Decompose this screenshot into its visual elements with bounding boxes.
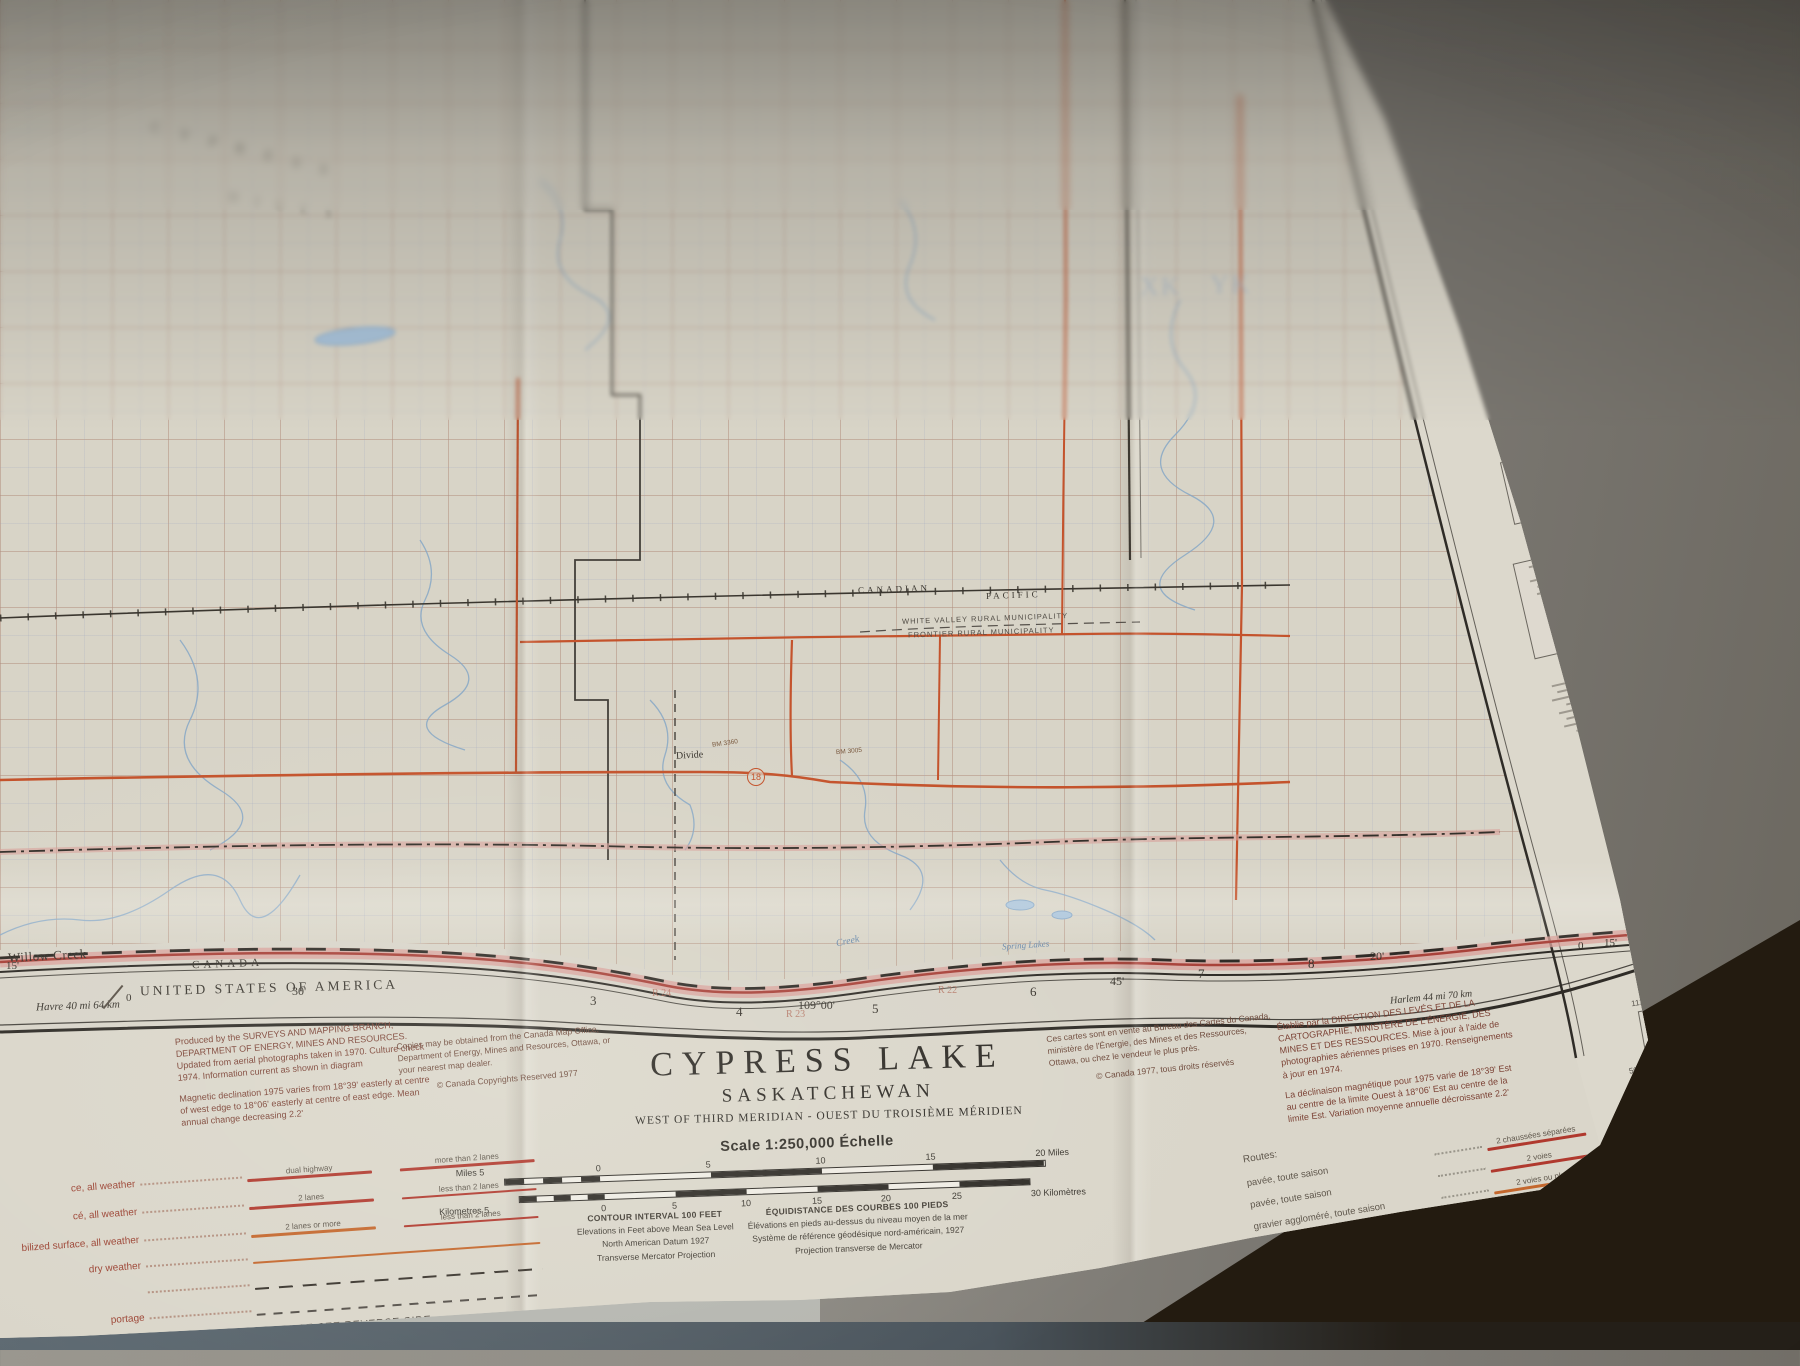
railway-label-pacific: PACIFIC	[986, 589, 1041, 601]
utm-zone-label: ZONE 13	[1464, 344, 1700, 408]
grid-reference-box	[1513, 535, 1662, 660]
graticule-tick: 45'	[1110, 974, 1124, 989]
utm-square-letters: YK	[1210, 270, 1252, 300]
highway-shield-18: 18	[747, 768, 765, 786]
margin-notes	[1543, 655, 1674, 741]
longitude-label: 109°00'	[798, 998, 835, 1013]
title-block: CYPRESS LAKE SASKATCHEWAN WEST OF THIRD …	[627, 1037, 1029, 1127]
township-number: 8	[1308, 956, 1315, 972]
town-label-divide: Divide	[676, 749, 704, 761]
graticule-tick: 15'	[1604, 937, 1617, 949]
boundary-label-canada: CANADA	[192, 957, 263, 971]
railway-ticks	[0, 585, 1290, 618]
utm-note-line: UNIVERSAL TRANSVERSE MERCATOR GRID	[1462, 335, 1697, 396]
km-tick: 30 Kilomètres	[1031, 1186, 1086, 1198]
credits-english: Produced by the SURVEYS AND MAPPING BRAN…	[174, 1016, 433, 1136]
utm-square-letters: XK	[1140, 272, 1182, 302]
range-number: R 22	[938, 985, 957, 996]
utm-note-line: TEN THOUSAND METRE	[1460, 326, 1696, 390]
miles-tick: 0	[596, 1163, 601, 1173]
utm-easting-label: 1100000m E	[1632, 928, 1679, 941]
miles-tick: 15	[925, 1152, 935, 1162]
township-number: 5	[872, 1001, 879, 1017]
graticule-tick: 0	[1578, 940, 1584, 952]
map-sheet: Willow Creek CANADA UNITED STATES OF AME…	[0, 0, 1800, 1350]
miles-tick: 5	[705, 1159, 710, 1169]
paper-fold	[0, 860, 1800, 950]
utm-note-line: QUADRILLAGE DE DIX MILLE MÈTRES	[1467, 356, 1703, 419]
township-number: 6	[1030, 984, 1037, 1000]
graticule-tick: 15'	[6, 960, 19, 972]
graticule-tick: 30'	[292, 984, 306, 999]
township-number: 3	[590, 993, 597, 1009]
grid-sample-box	[1500, 443, 1598, 525]
mile-tick: 0	[126, 992, 132, 1004]
longitude-corner: 112°	[1631, 997, 1648, 1009]
utm-note-line: PROJECTION TRANSVERSE UNIVERSELLE DE MER…	[1469, 365, 1704, 426]
range-number: R 24	[652, 988, 671, 999]
miles-tick: 10	[815, 1155, 825, 1165]
photo-scene: Willow Creek CANADA UNITED STATES OF AME…	[0, 0, 1800, 1350]
township-number: 4	[736, 1004, 743, 1020]
utm-grid-note: TEN THOUSAND METRE UNIVERSAL TRANSVERSE …	[1460, 326, 1704, 426]
township-number: 7	[1198, 966, 1205, 982]
miles-tick: 20 Miles	[1035, 1147, 1069, 1158]
graticule-tick: 20'	[1370, 949, 1384, 964]
stepped-boundary	[575, 0, 640, 860]
